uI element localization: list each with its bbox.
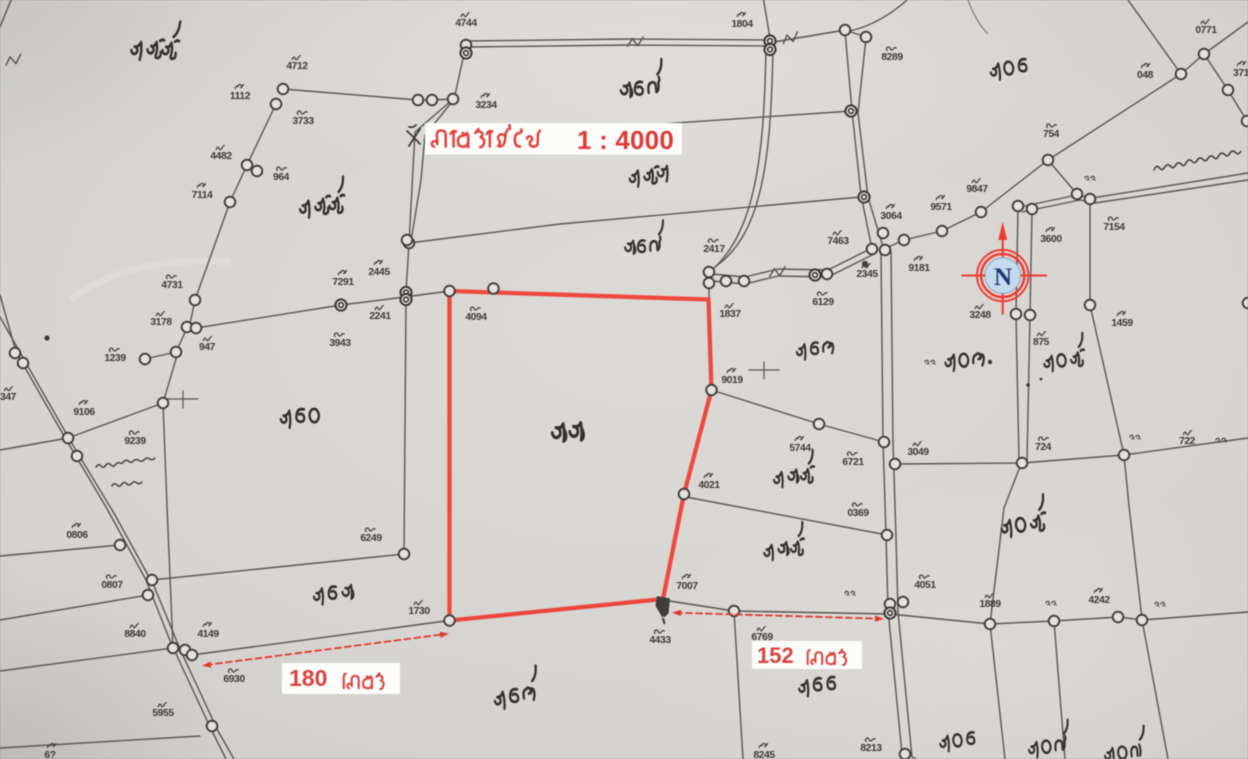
svg-text:4021: 4021	[698, 480, 720, 491]
svg-text:964: 964	[273, 172, 290, 183]
svg-text:9239: 9239	[124, 436, 146, 447]
svg-text:3248: 3248	[969, 310, 991, 321]
svg-text:9571: 9571	[930, 202, 952, 213]
svg-text:5744: 5744	[789, 443, 811, 454]
svg-text:947: 947	[199, 342, 216, 353]
svg-text:0806: 0806	[66, 530, 88, 541]
svg-text:7154: 7154	[1103, 222, 1125, 233]
svg-text:8840: 8840	[124, 629, 146, 640]
svg-text:5955: 5955	[152, 708, 174, 719]
svg-text:9019: 9019	[721, 375, 743, 386]
svg-text:9181: 9181	[908, 263, 930, 274]
svg-text:4149: 4149	[197, 629, 219, 640]
svg-text:6930: 6930	[223, 674, 245, 685]
svg-text:9847: 9847	[966, 184, 988, 195]
svg-text:2345: 2345	[856, 269, 878, 280]
svg-text:3178: 3178	[150, 317, 172, 328]
svg-text:0807: 0807	[101, 580, 123, 591]
svg-text:1459: 1459	[1111, 318, 1133, 329]
svg-text:N: N	[994, 264, 1012, 291]
svg-text:2445: 2445	[368, 267, 390, 278]
svg-text:4094: 4094	[465, 312, 487, 323]
svg-text:4482: 4482	[210, 151, 232, 162]
svg-text:8213: 8213	[860, 743, 882, 754]
svg-text:0369: 0369	[847, 508, 869, 519]
svg-text:4712: 4712	[286, 61, 308, 72]
svg-text:2241: 2241	[369, 311, 391, 322]
svg-text:1730: 1730	[408, 606, 430, 617]
svg-text:8245: 8245	[753, 750, 775, 759]
svg-text:9106: 9106	[73, 407, 95, 418]
svg-text:4731: 4731	[161, 280, 183, 291]
svg-text:0771: 0771	[1195, 25, 1217, 36]
svg-text:1 : 4000: 1 : 4000	[577, 125, 674, 155]
svg-text:3064: 3064	[880, 211, 902, 222]
svg-text:7007: 7007	[676, 581, 698, 592]
svg-text:152: 152	[757, 643, 794, 668]
svg-text:7114: 7114	[192, 190, 213, 201]
svg-text:1112: 1112	[230, 91, 251, 102]
svg-text:722: 722	[1179, 436, 1196, 447]
svg-text:1837: 1837	[719, 309, 741, 320]
svg-text:180: 180	[289, 665, 327, 691]
svg-text:4433: 4433	[649, 635, 671, 646]
svg-text:2417: 2417	[703, 244, 725, 255]
svg-text:754: 754	[1043, 129, 1060, 140]
svg-text:371: 371	[1233, 68, 1248, 79]
svg-text:4051: 4051	[914, 580, 936, 591]
svg-text:3733: 3733	[292, 116, 314, 127]
svg-text:6?: 6?	[44, 750, 55, 759]
svg-text:4242: 4242	[1088, 595, 1110, 606]
svg-text:048: 048	[1137, 70, 1154, 81]
svg-text:875: 875	[1033, 337, 1050, 348]
svg-text:3234: 3234	[475, 100, 497, 111]
svg-text:1239: 1239	[104, 353, 126, 364]
svg-text:4744: 4744	[455, 18, 477, 29]
svg-text:724: 724	[1035, 442, 1052, 453]
svg-text:6249: 6249	[360, 533, 382, 544]
svg-text:6129: 6129	[812, 297, 834, 308]
svg-text:347: 347	[0, 392, 17, 403]
svg-text:7463: 7463	[827, 236, 849, 247]
svg-text:8289: 8289	[881, 52, 903, 63]
svg-text:6721: 6721	[842, 457, 864, 468]
svg-text:1889: 1889	[979, 599, 1001, 610]
svg-text:3600: 3600	[1040, 234, 1062, 245]
svg-text:3943: 3943	[329, 338, 351, 349]
svg-text:7291: 7291	[332, 277, 354, 288]
svg-text:1804: 1804	[731, 19, 753, 30]
svg-text:3049: 3049	[907, 447, 929, 458]
